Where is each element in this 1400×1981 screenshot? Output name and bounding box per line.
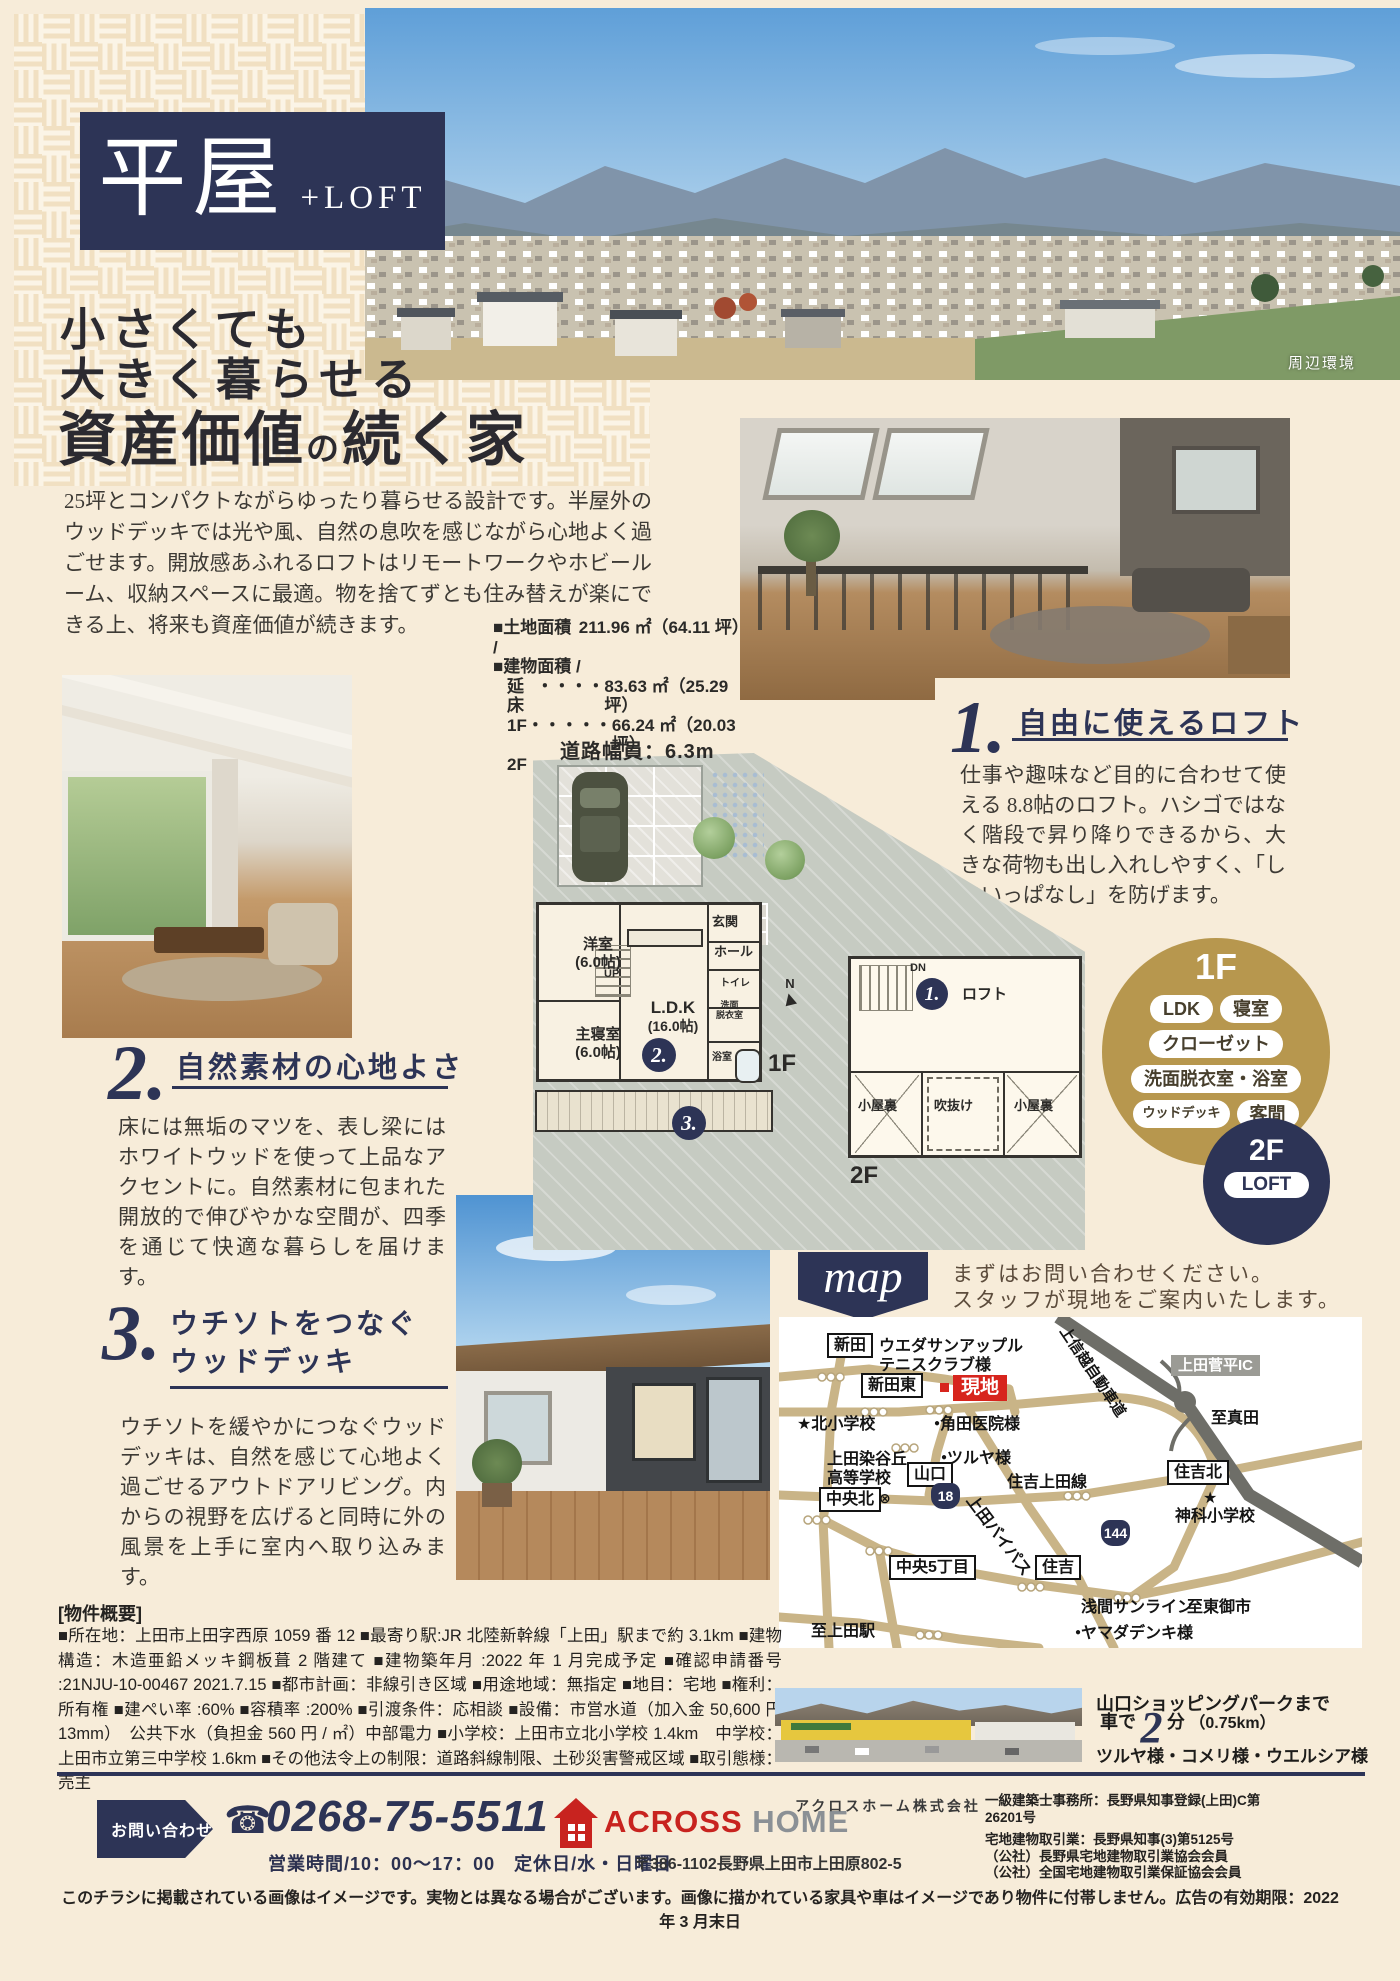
badge-room: クローゼット (1149, 1030, 1283, 1058)
stairs-dn-label: DN (910, 962, 926, 975)
room-label-yoshitsu: 洋室 (6.0帖) (552, 936, 644, 972)
plan-marker-3: 3. (672, 1106, 706, 1140)
point-2-underline (172, 1086, 448, 1089)
map-banner: map (798, 1252, 928, 1320)
title-sub: +LOFT (300, 180, 426, 217)
point-1-title: 自由に使えるロフト (1018, 700, 1305, 742)
route-shield-18: 18 (931, 1483, 960, 1509)
badge-2f-title: 2F (1249, 1134, 1284, 1168)
room-label-genkan: 玄関 (712, 914, 738, 930)
floor-1f-label: 1F (768, 1050, 796, 1079)
panorama-caption: 周辺環境 (1288, 352, 1356, 373)
land-area-value: 211.96 ㎡（64.11 坪） (579, 618, 745, 657)
room-label-koyaura-left: 小屋裏 (858, 1098, 897, 1114)
map-label-yamada-denki: ●ヤマダデンキ様 (1075, 1623, 1193, 1643)
floor-area-name: 延床 (493, 677, 536, 716)
phone-icon: ☎ (224, 1798, 271, 1843)
room-label-bath: 浴室 (712, 1052, 732, 1064)
map-label-ic: 上田菅平IC (1171, 1355, 1260, 1376)
point-1-underline (1012, 738, 1288, 741)
title-main: 平屋 (98, 120, 286, 240)
land-area-row: ■土地面積 / 211.96 ㎡（64.11 坪） (493, 618, 745, 657)
badge-room: LDK (1150, 995, 1213, 1023)
road-width-label: 道路幅員：6.3m (560, 735, 715, 764)
school-star-icon: ★ (797, 1416, 811, 1433)
catch-particle: の (306, 432, 342, 468)
room-label-senmen: 洗面 脱衣室 (716, 1000, 743, 1020)
map-label-chuo-kita: 中央北 (819, 1487, 881, 1512)
badge-2f-circle: 2F LOFT (1203, 1118, 1330, 1245)
map-label-genchi: 現地 (953, 1375, 1007, 1401)
point-2-number: 2. (108, 1028, 167, 1118)
floor-area-name: 1F (493, 716, 527, 755)
room-label-loft: ロフト (962, 986, 1007, 1004)
point-1-body: 仕事や趣味など目的に合わせて使える 8.8帖のロフト。ハシゴではなく階段で昇り降… (960, 760, 1286, 910)
map-label-to-ueda-station: 至上田駅 (811, 1622, 875, 1641)
map-label-someyaoka: 上田染谷丘 高等学校 (827, 1450, 907, 1488)
map-label-tsuruya: ●ツルヤ様 (941, 1448, 1011, 1468)
badge-room: LOFT (1224, 1172, 1310, 1198)
company-address: 〒386-1102長野県上田市上田原802-5 (634, 1850, 902, 1874)
room-label-toilet: トイレ (720, 978, 750, 990)
room-label-hall: ホール (714, 944, 753, 960)
map-label-sumiyoshi-ueda-line: 住吉上田線 (1007, 1473, 1087, 1492)
disclaimer: このチラシに掲載されている画像はイメージです。実物とは異なる場合がございます。画… (60, 1884, 1340, 1932)
contact-badge: お問い合わせ (97, 1800, 213, 1858)
bush-icon (765, 840, 805, 880)
school-star-icon: ★ (1203, 1489, 1217, 1508)
drive-suffix: 分 (1167, 1712, 1185, 1732)
exterior-deck-photo (456, 1195, 770, 1580)
title-box: 平屋 +LOFT (80, 112, 445, 250)
map-label-kamishina: 神科小学校 (1175, 1507, 1255, 1526)
map-lead: まずはお問い合わせください。 スタッフが現地をご案内いたします。 (952, 1261, 1341, 1313)
access-map: 新田 ウエダサンアップル テニスクラブ様 新田東 現地 上信越自動車道 上田菅平… (779, 1317, 1362, 1648)
point-2-body: 床には無垢のマツを、表し梁にはホワイトウッドを使って上品なアクセントに。自然素材… (118, 1112, 446, 1292)
dots: ・・・・ (536, 677, 604, 716)
map-lead-line1: まずはお問い合わせください。 (952, 1261, 1341, 1287)
panorama-photo (365, 8, 1400, 380)
company-name-kana: アクロスホーム株式会社 (795, 1796, 981, 1816)
living-interior-photo (62, 675, 352, 1038)
badge-room: 寝室 (1220, 995, 1282, 1023)
floor-area-row: 延床 ・・・・ 83.63 ㎡（25.29 坪） (493, 677, 745, 716)
badge-room: 洗面脱衣室・浴室 (1131, 1065, 1301, 1093)
map-label-to-tomi: 至東御市 (1187, 1598, 1251, 1617)
license-line: 一級建築士事務所：長野県知事登録(上田)C第26201号 (985, 1793, 1285, 1826)
license-line: 宅地建物取引業：長野県知事(3)第5125号 (985, 1832, 1285, 1849)
shopping-stores: ツルヤ様・コメリ様・ウエルシア様 (1096, 1742, 1368, 1767)
map-label-kita-elementary: ★北小学校 (797, 1415, 875, 1434)
phone-number: 0268-75-5511 (266, 1792, 549, 1842)
logo-across: ACROSS (604, 1804, 743, 1839)
overview-heading: [物件概要] (58, 1600, 142, 1626)
map-label-sumiyoshi: 住吉 (1035, 1555, 1081, 1580)
map-site-marker (940, 1383, 949, 1392)
map-label-tennis: ウエダサンアップル テニスクラブ様 (879, 1337, 1023, 1375)
license-line: （公社）長野県宅地建物取引業協会会員 (985, 1849, 1285, 1866)
room-label-koyaura-right: 小屋裏 (1014, 1098, 1053, 1114)
map-label-to-sanada: 至真田 (1211, 1409, 1259, 1428)
room-label-ldk: L.D.K (16.0帖) (618, 998, 728, 1035)
map-label-asama-sunline: 浅間サンライン (1081, 1598, 1193, 1617)
point-3-title: ウチソトをつなぐ ウッドデッキ (170, 1306, 418, 1382)
point-3-body: ウチソトを緩やかにつなぐウッドデッキは、自然を感じて心地よく過ごせるアウトドアリ… (120, 1412, 446, 1592)
map-label-sumiyoshi-kita: 住吉北 (1167, 1460, 1229, 1485)
drive-prefix: 車で (1100, 1712, 1136, 1732)
plan-marker-1: 1. (916, 978, 948, 1010)
route-shield-144: 144 (1101, 1520, 1130, 1546)
license-block: 一級建築士事務所：長野県知事登録(上田)C第26201号 宅地建物取引業：長野県… (985, 1793, 1285, 1882)
bush-icon (693, 817, 735, 859)
floor-2f-label: 2F (850, 1162, 878, 1191)
floor-area-value: 83.63 ㎡（25.29 坪） (604, 677, 745, 716)
point-3-title-line2: ウッドデッキ (170, 1344, 418, 1382)
map-label-kakuta-clinic: ●角田医院様 (934, 1414, 1020, 1434)
map-label-shinden: 新田 (827, 1333, 873, 1358)
point-2-title: 自然素材の心地よさ (176, 1044, 464, 1086)
across-home-logo-icon (552, 1796, 600, 1850)
badge-room: ウッドデッキ (1133, 1100, 1229, 1128)
north-arrow-icon: N ▲ (780, 976, 800, 1007)
point-3-underline (170, 1386, 448, 1389)
building-area-label: ■建物面積 / (493, 657, 745, 677)
flyer-page: 周辺環境 平屋 +LOFT 小さくても 大きく暮らせる 資産価値の続く家 25坪… (0, 0, 1400, 1981)
point-1-number: 1. (950, 686, 1006, 771)
point-3-title-line1: ウチソトをつなぐ (170, 1306, 418, 1344)
floor-area-name: 2F (493, 755, 527, 794)
car-icon (572, 772, 628, 882)
land-area-label: ■土地面積 / (493, 618, 579, 657)
map-label-shinden-higashi: 新田東 (861, 1373, 923, 1398)
map-label-chuo5: 中央5丁目 (889, 1555, 976, 1580)
catch-emph-1: 資産価値 (58, 407, 306, 473)
badge-1f-title: 1F (1195, 946, 1237, 988)
catch-line-3: 資産価値の続く家 (58, 392, 528, 477)
map-banner-text: map (823, 1252, 902, 1302)
catch-emph-2: 続く家 (342, 407, 528, 473)
stairs-up-label: UP (604, 968, 619, 981)
overview-body: ■所在地：上田市上田字西原 1059 番 12 ■最寄り駅:JR 北陸新幹線「上… (58, 1624, 782, 1796)
footer-divider (57, 1772, 1365, 1776)
drive-distance: （0.75km） (1189, 1715, 1275, 1732)
room-label-fukinuke: 吹抜け (934, 1098, 973, 1114)
shopping-park-photo (775, 1688, 1082, 1762)
business-hours: 営業時間/10：00～17：00 定休日/水・日曜日 (268, 1850, 672, 1876)
loft-interior-photo (740, 418, 1290, 700)
license-line: （公社）全国宅地建物取引業保証協会会員 (985, 1865, 1285, 1882)
plan-marker-2: 2. (642, 1038, 676, 1072)
map-lead-line2: スタッフが現地をご案内いたします。 (952, 1287, 1341, 1313)
point-3-number: 3. (102, 1288, 161, 1378)
wood-deck-plan (535, 1090, 773, 1132)
